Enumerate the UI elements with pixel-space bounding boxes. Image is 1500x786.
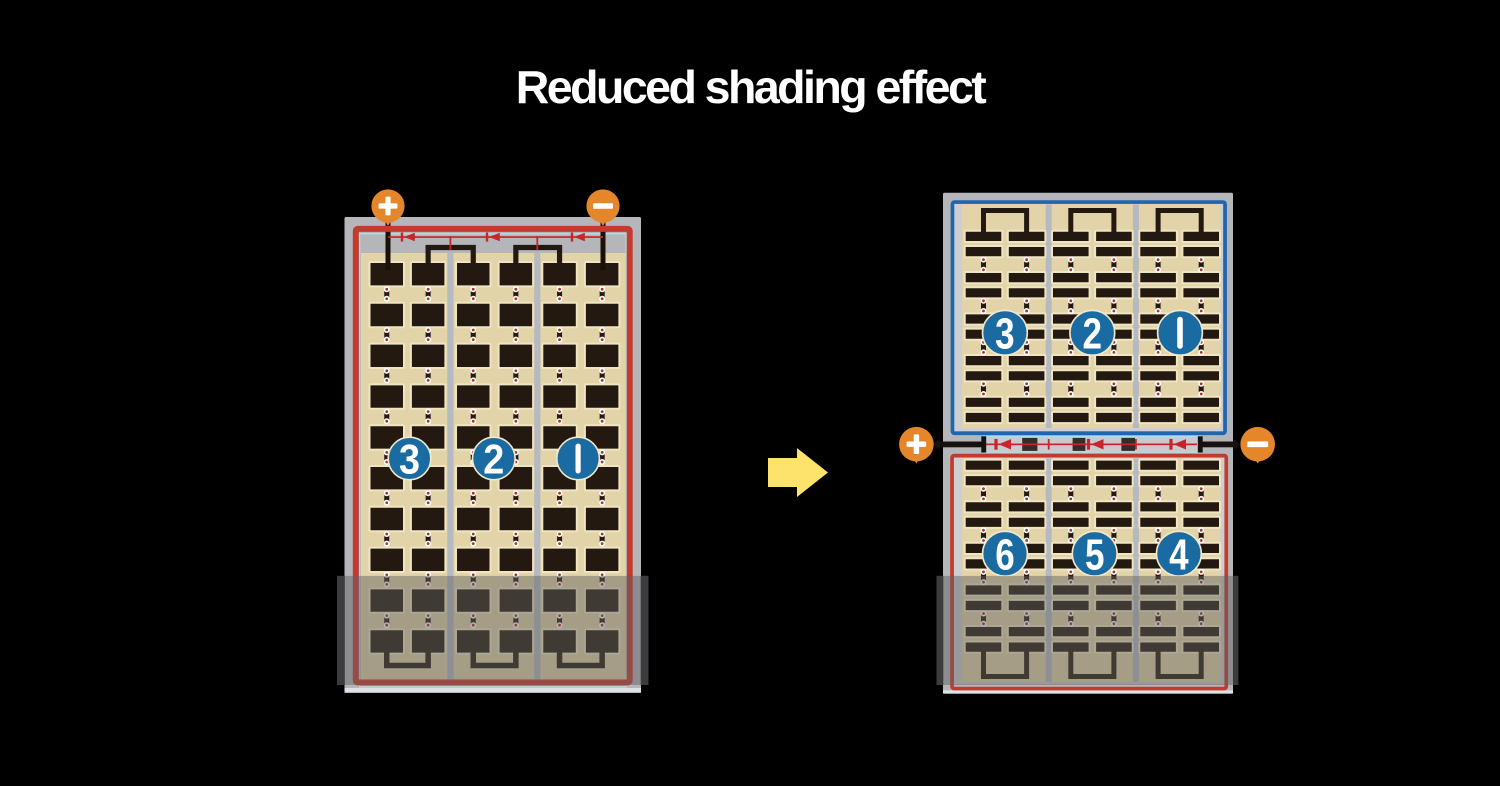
- svg-text:Reduced shading effect: Reduced shading effect: [516, 61, 986, 113]
- svg-text:6: 6: [995, 532, 1015, 580]
- svg-text:4: 4: [1169, 532, 1189, 580]
- svg-text:3: 3: [995, 311, 1015, 359]
- svg-text:3: 3: [399, 436, 420, 483]
- svg-text:2: 2: [483, 436, 504, 483]
- svg-text:5: 5: [1085, 532, 1105, 580]
- svg-text:2: 2: [1083, 311, 1103, 359]
